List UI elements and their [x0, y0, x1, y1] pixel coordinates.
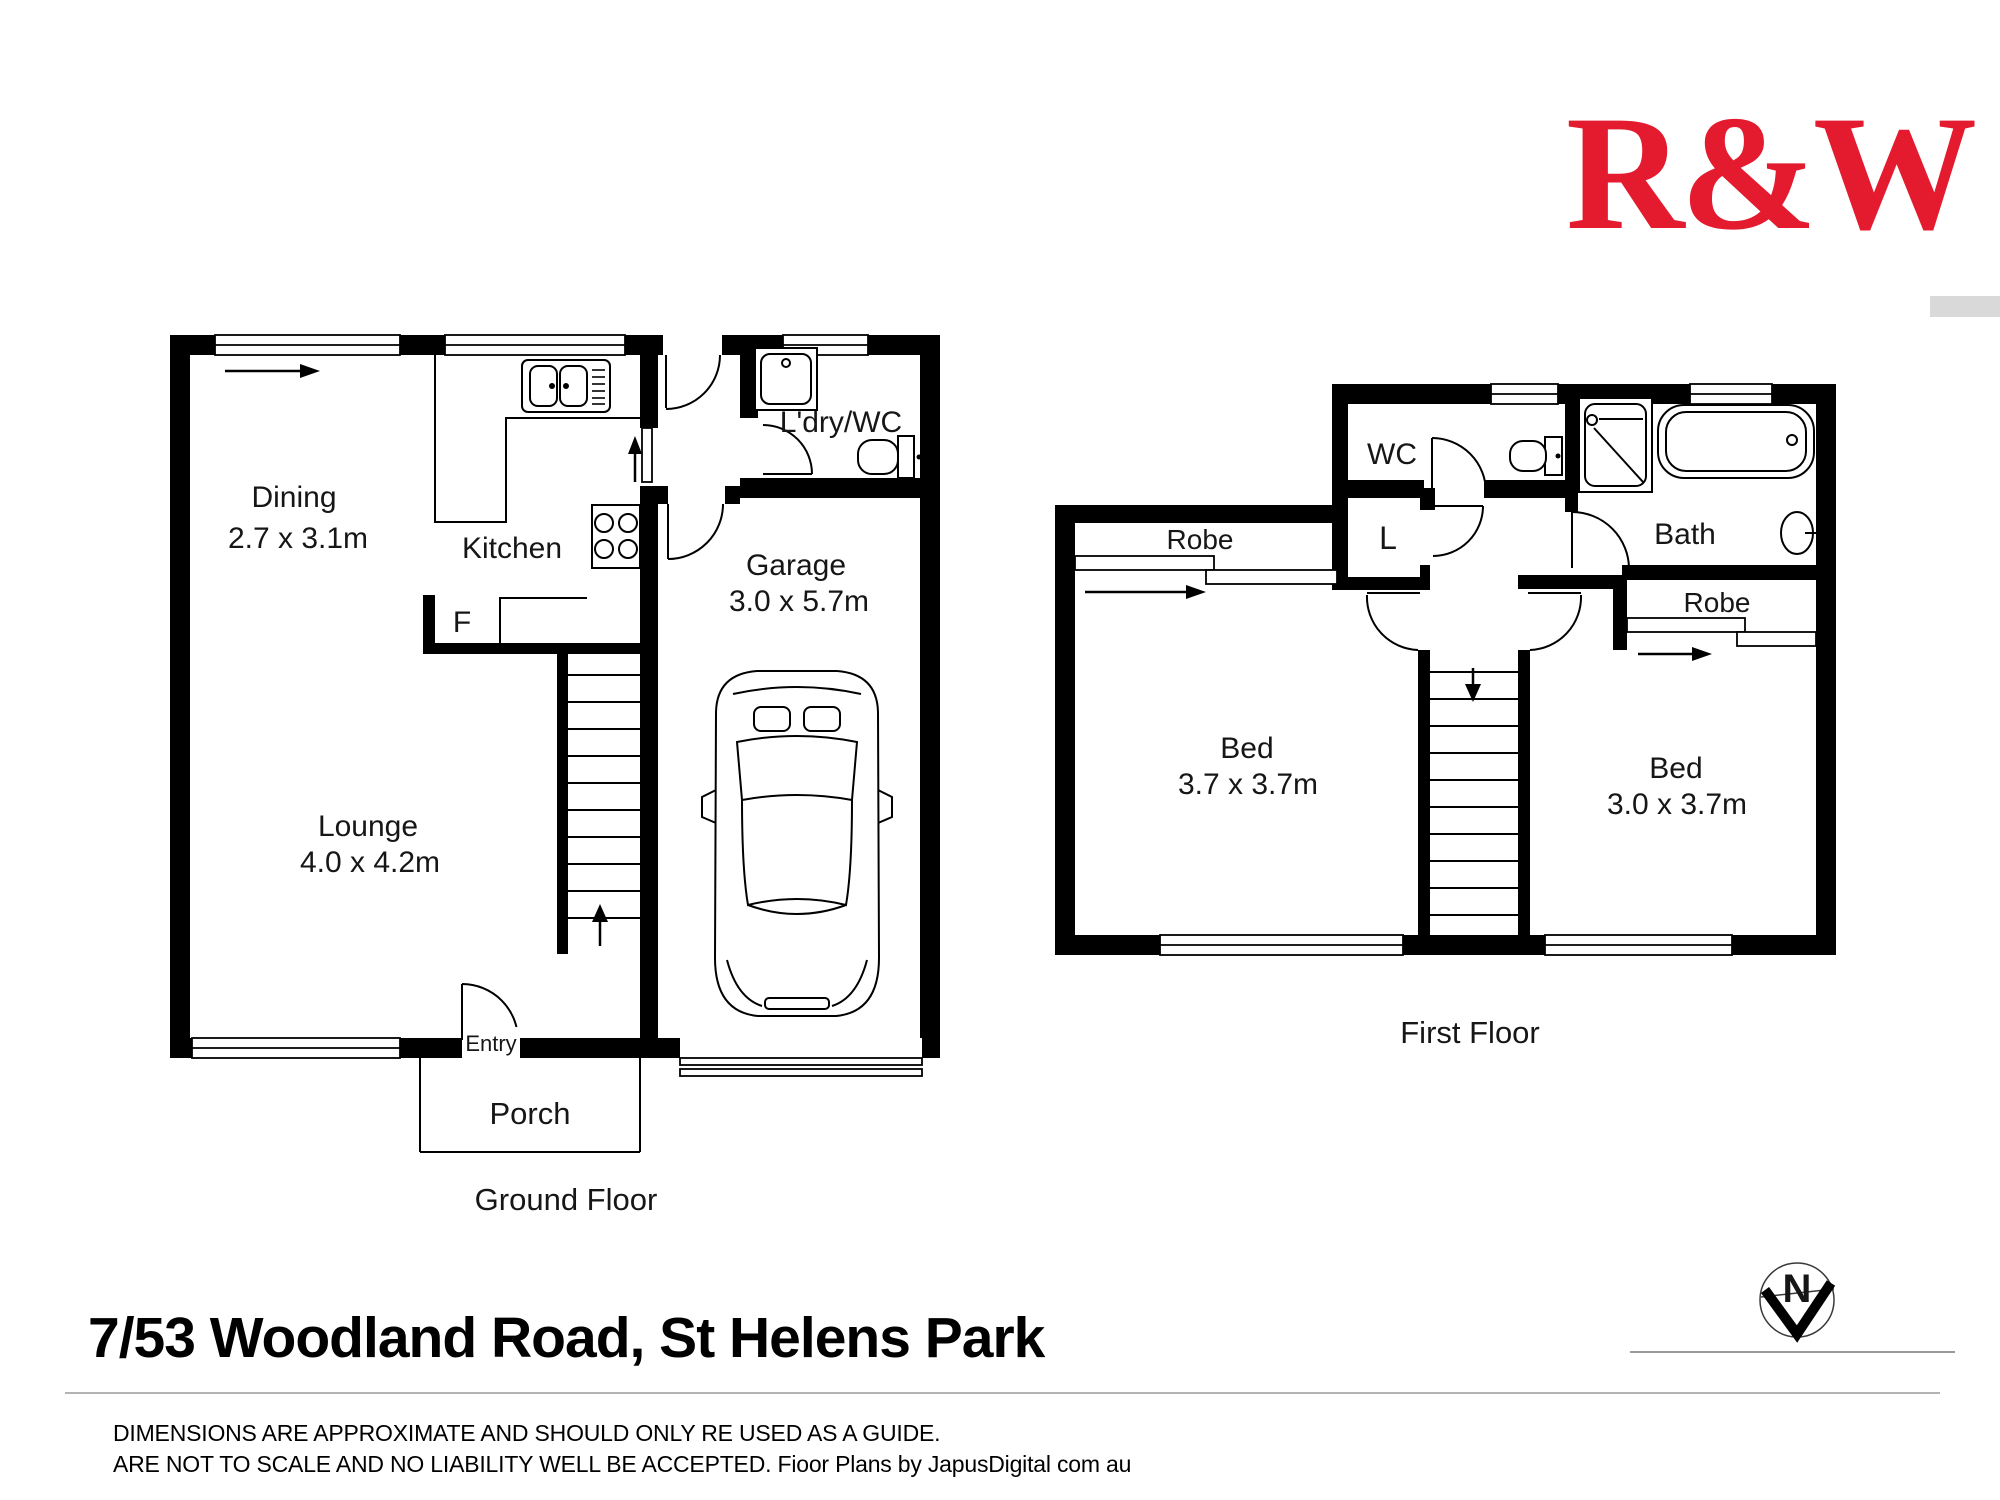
sliding-door-kitchen	[628, 428, 652, 482]
toilet-icon-ground	[858, 436, 922, 478]
bathtub-icon	[1658, 405, 1814, 478]
sliding-arrow-dining	[225, 364, 320, 378]
stairs-up-arrow	[592, 904, 608, 922]
stairs-down	[1430, 668, 1518, 915]
basin-icon	[1781, 512, 1822, 554]
label-robe-left: Robe	[1167, 524, 1234, 555]
label-porch: Porch	[490, 1096, 571, 1131]
robe-right-arrow	[1638, 647, 1712, 661]
robe-left-doors	[1075, 556, 1337, 584]
label-garage: Garage	[746, 549, 846, 582]
floorplan-page: R&W	[0, 0, 2000, 1500]
label-fridge: F	[453, 606, 471, 639]
label-bath: Bath	[1654, 518, 1716, 551]
toilet-icon-first	[1510, 437, 1562, 475]
laundry-tub-icon	[755, 348, 817, 410]
label-kitchen: Kitchen	[462, 532, 562, 565]
label-first-floor: First Floor	[1400, 1015, 1540, 1050]
label-bed1: Bed	[1220, 732, 1273, 765]
disclaimer-line1: DIMENSIONS ARE APPROXIMATE AND SHOULD ON…	[113, 1418, 1131, 1449]
entry-label-group: Entry	[463, 1027, 519, 1058]
label-lounge-dims: 4.0 x 4.2m	[300, 846, 440, 879]
label-entry: Entry	[465, 1031, 516, 1056]
label-dining: Dining	[251, 481, 336, 514]
compass-underline	[1630, 1351, 1955, 1353]
label-ground-floor: Ground Floor	[475, 1182, 658, 1217]
label-linen: L	[1379, 520, 1397, 556]
label-bed1-dims: 3.7 x 3.7m	[1178, 768, 1318, 801]
north-compass: N	[1760, 1263, 1834, 1337]
label-laundry-wc: L'dry/WC	[780, 406, 902, 439]
label-lounge: Lounge	[318, 810, 418, 843]
car-icon	[702, 671, 892, 1016]
property-address: 7/53 Woodland Road, St Helens Park	[88, 1305, 1044, 1371]
label-robe-right: Robe	[1684, 587, 1751, 618]
label-garage-dims: 3.0 x 5.7m	[729, 585, 869, 618]
stairs-up	[568, 675, 640, 946]
label-bed2-dims: 3.0 x 3.7m	[1607, 788, 1747, 821]
stove-icon	[592, 505, 640, 568]
label-bed2: Bed	[1649, 752, 1702, 785]
compass-north-label: N	[1783, 1267, 1812, 1311]
ground-floor-plan: Dining 2.7 x 3.1m Kitchen F L'dry/WC Gar…	[170, 335, 940, 1217]
robe-right-doors	[1627, 618, 1816, 646]
first-floor-plan: WC L Bath Robe Robe Bed 3.7 x 3.7m Bed 3…	[1055, 384, 1836, 1050]
label-wc: WC	[1367, 438, 1417, 471]
robe-left-arrow	[1085, 585, 1206, 599]
kitchen-sink-icon	[522, 360, 610, 412]
floorplan-drawing: Dining 2.7 x 3.1m Kitchen F L'dry/WC Gar…	[0, 0, 2000, 1500]
shower-icon	[1579, 398, 1652, 492]
label-dining-dims: 2.7 x 3.1m	[228, 522, 368, 555]
disclaimer-text: DIMENSIONS ARE APPROXIMATE AND SHOULD ON…	[113, 1418, 1131, 1480]
disclaimer-line2: ARE NOT TO SCALE AND NO LIABILITY WELL B…	[113, 1449, 1131, 1480]
footer-divider	[65, 1392, 1940, 1394]
